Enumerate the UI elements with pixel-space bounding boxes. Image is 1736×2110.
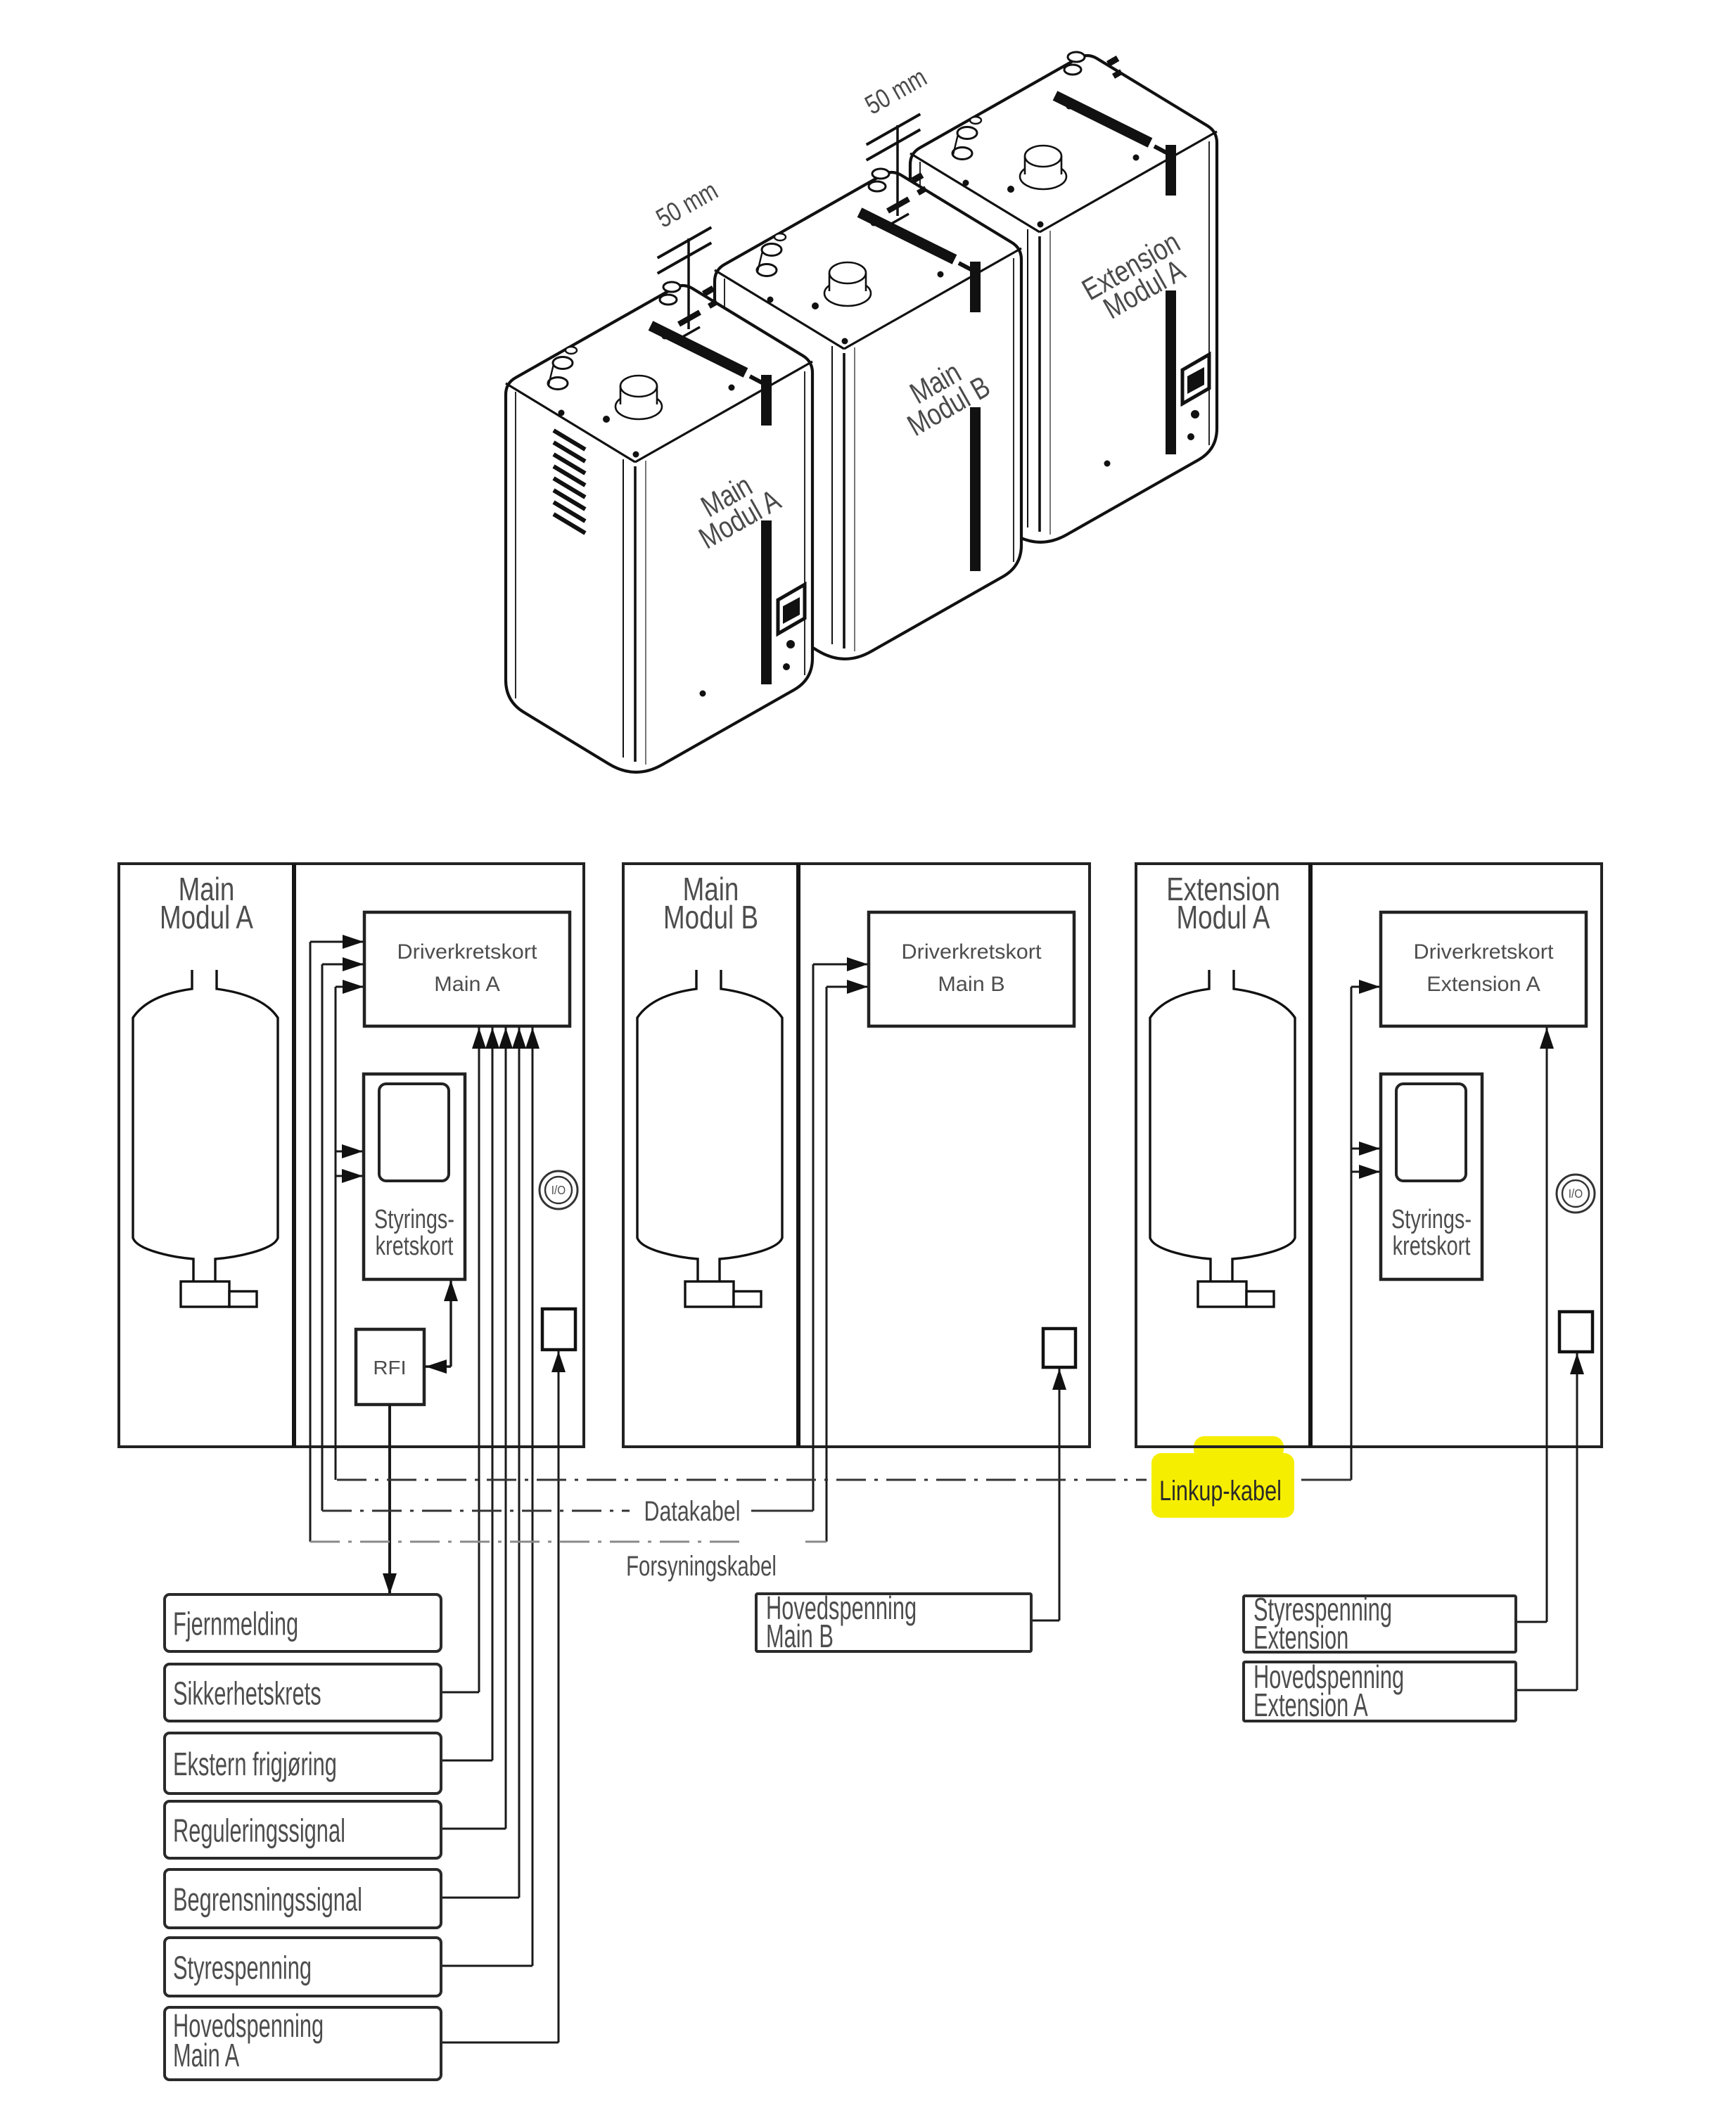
svg-text:Main A: Main A [434,973,500,996]
svg-text:Styrings-: Styrings- [1391,1204,1472,1234]
svg-text:Styrespenning: Styrespenning [173,1951,312,1987]
svg-text:Driverkretskort: Driverkretskort [902,940,1042,964]
svg-text:Extension A: Extension A [1427,973,1540,996]
svg-text:I/O: I/O [1569,1187,1583,1201]
svg-text:Extension A: Extension A [1253,1688,1368,1724]
svg-text:kretskort: kretskort [1393,1231,1471,1261]
svg-text:Main B: Main B [766,1619,834,1655]
svg-text:Linkup-kabel: Linkup-kabel [1159,1475,1282,1507]
svg-text:RFI: RFI [373,1357,406,1379]
svg-text:Main A: Main A [173,2038,240,2074]
svg-text:Datakabel: Datakabel [644,1495,741,1527]
svg-text:Driverkretskort: Driverkretskort [1414,940,1554,964]
svg-text:Begrensningssignal: Begrensningssignal [173,1883,362,1919]
svg-text:Ekstern frigjøring: Ekstern frigjøring [173,1747,337,1783]
svg-text:Extension: Extension [1253,1620,1348,1656]
svg-text:Styrings-: Styrings- [374,1204,454,1234]
svg-text:Fjernmelding: Fjernmelding [173,1607,298,1643]
svg-text:Modul A: Modul A [1177,899,1270,935]
svg-text:I/O: I/O [551,1183,566,1197]
svg-text:Modul A: Modul A [160,899,253,935]
svg-text:Modul B: Modul B [663,899,758,935]
svg-text:Main B: Main B [938,973,1004,996]
svg-text:Sikkerhetskrets: Sikkerhetskrets [173,1677,321,1713]
svg-text:kretskort: kretskort [376,1231,454,1261]
svg-text:Driverkretskort: Driverkretskort [397,940,537,964]
svg-text:Forsyningskabel: Forsyningskabel [626,1551,777,1582]
svg-text:Reguleringssignal: Reguleringssignal [173,1814,345,1850]
